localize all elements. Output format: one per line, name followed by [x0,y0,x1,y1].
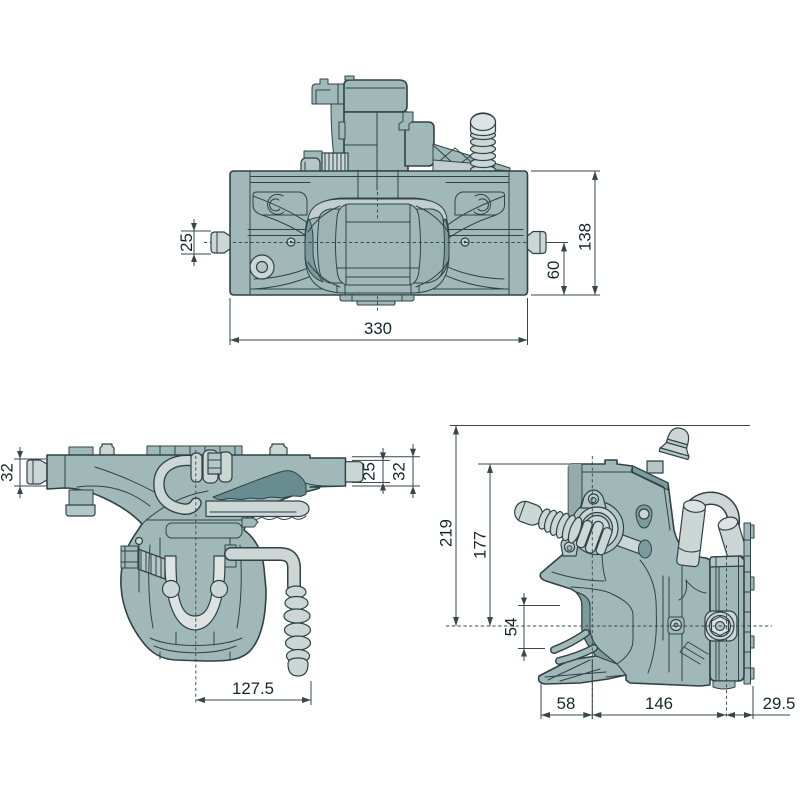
svg-text:29.5: 29.5 [763,694,796,713]
svg-text:58: 58 [557,694,576,713]
svg-text:54: 54 [501,618,520,637]
svg-text:25: 25 [177,233,196,252]
svg-text:219: 219 [436,519,455,547]
svg-text:32: 32 [389,462,408,481]
svg-text:330: 330 [364,319,392,338]
svg-text:25: 25 [359,462,378,481]
svg-text:138: 138 [575,223,594,251]
svg-text:127.5: 127.5 [232,679,274,698]
svg-text:177: 177 [470,531,489,559]
svg-text:32: 32 [0,463,16,482]
svg-text:146: 146 [645,694,673,713]
svg-text:60: 60 [544,261,563,280]
